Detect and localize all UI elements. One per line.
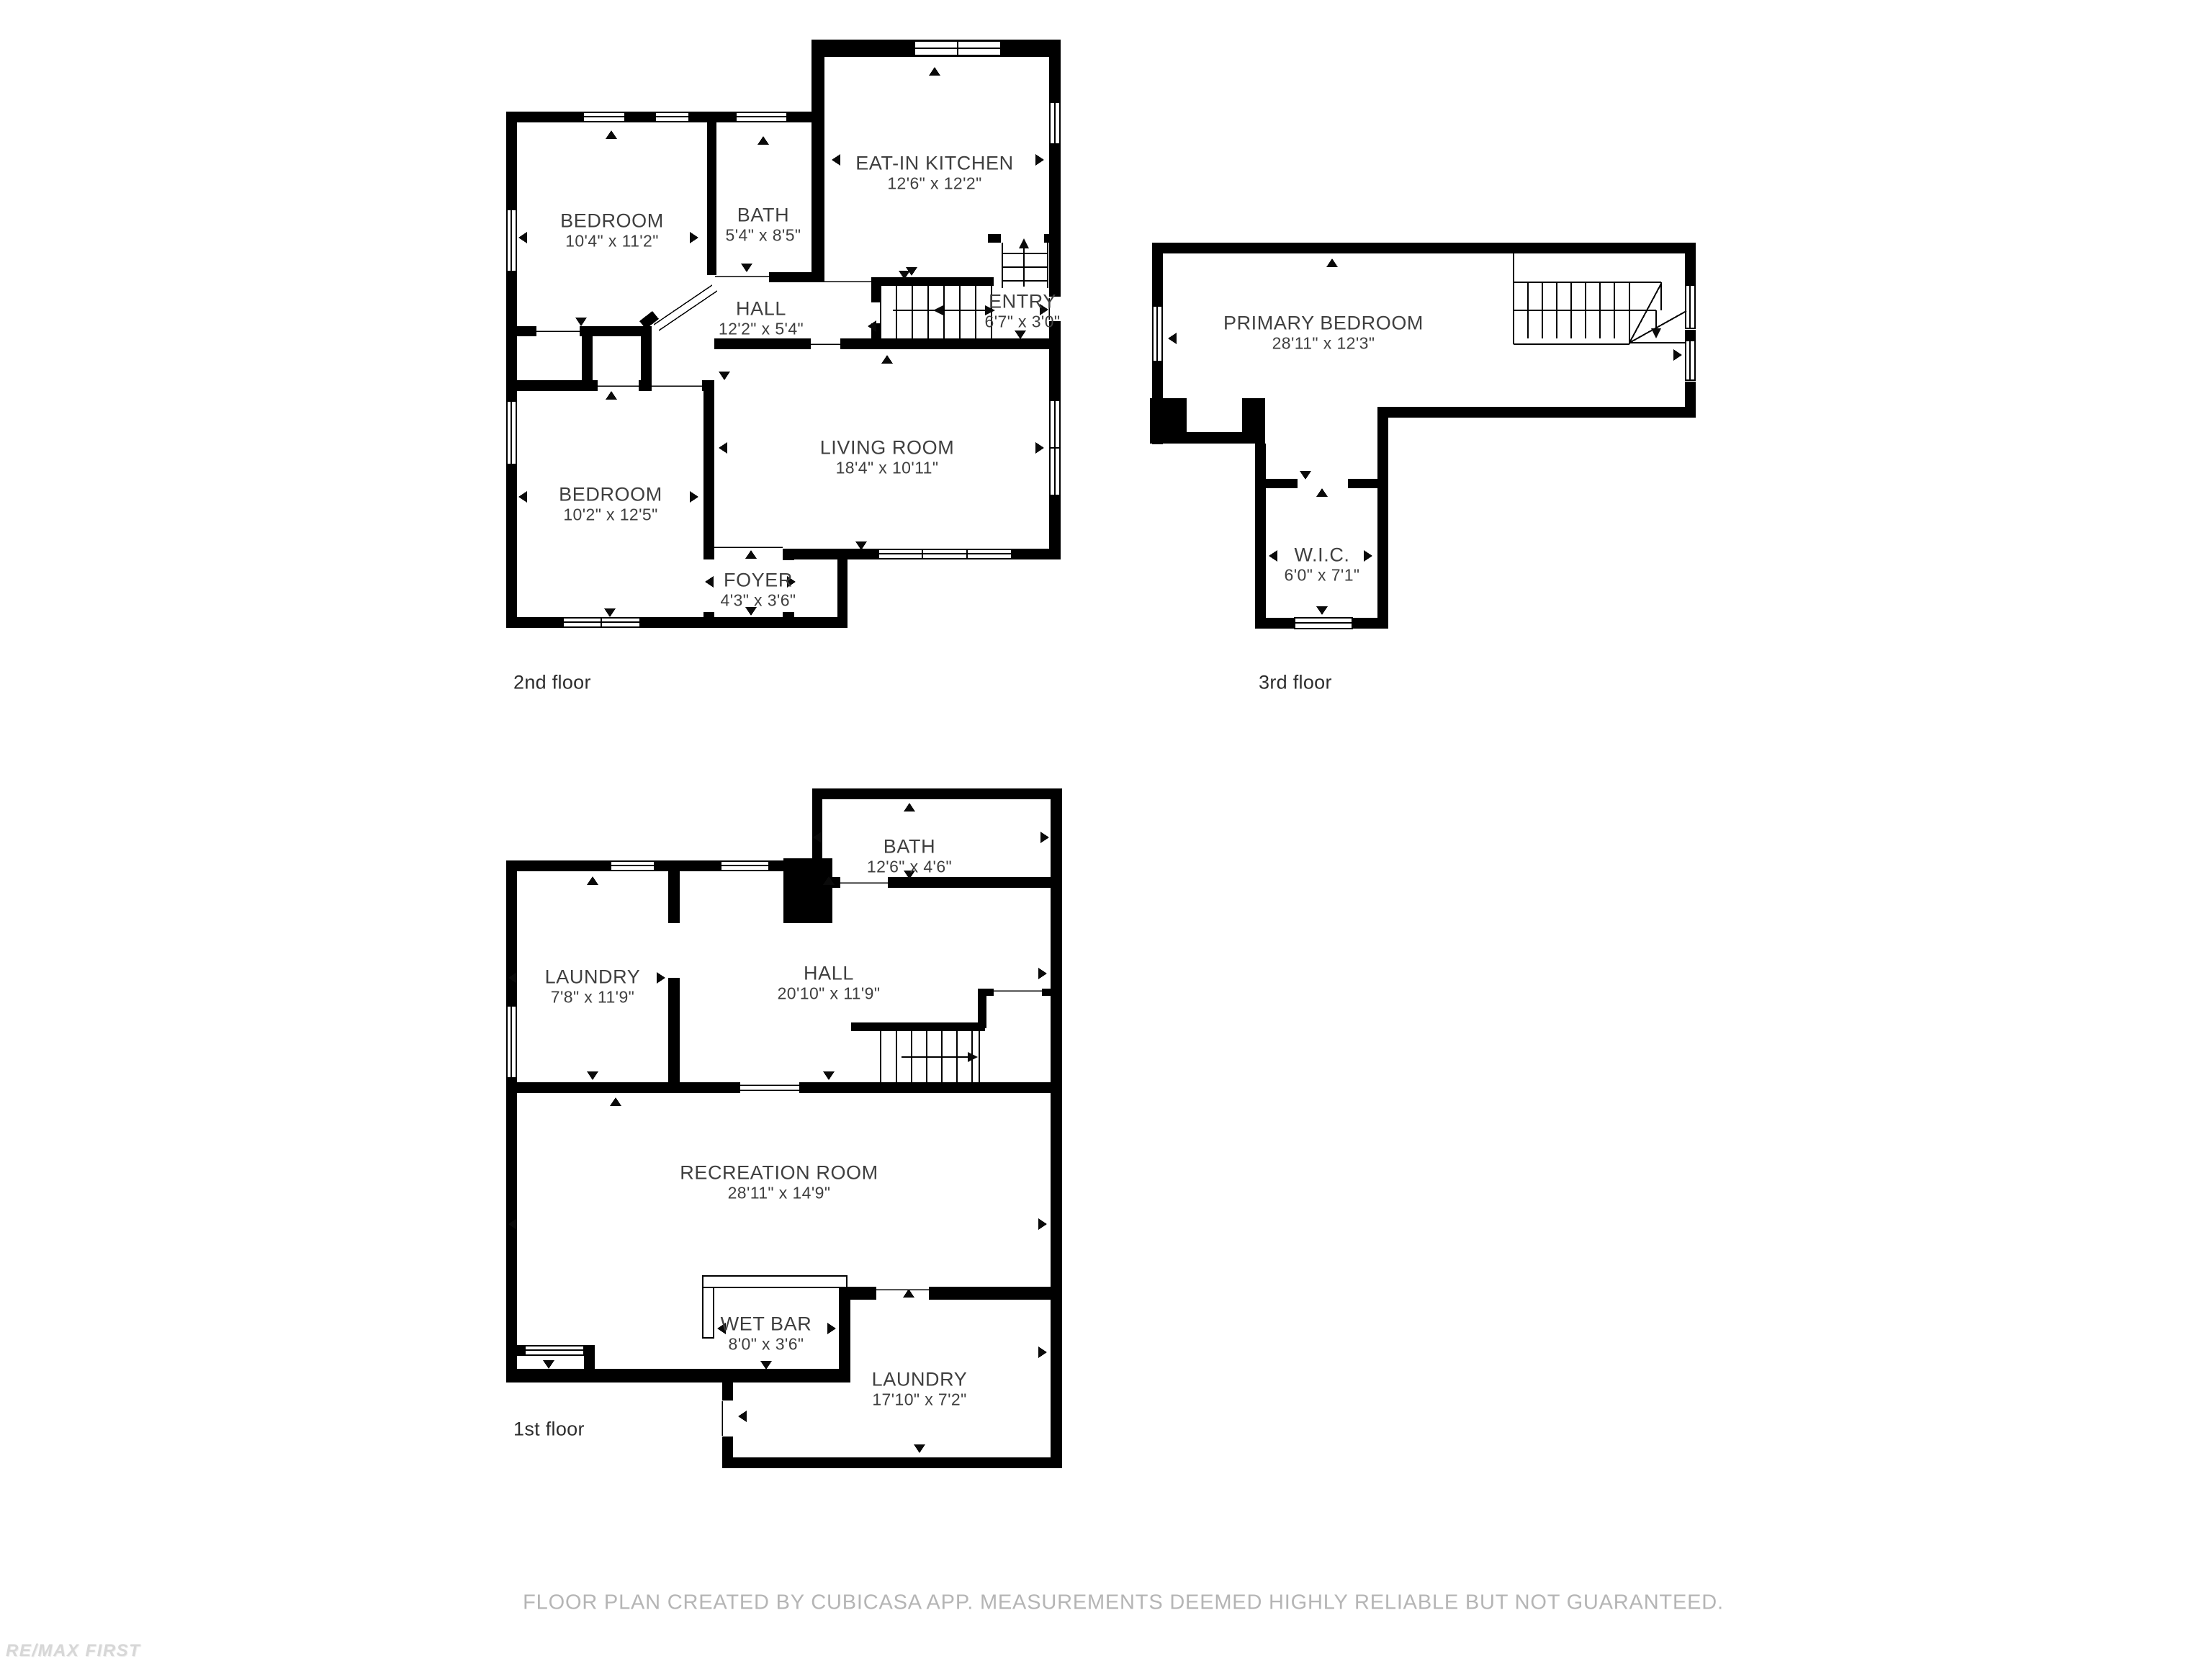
caption-2nd-floor: 2nd floor bbox=[513, 672, 591, 694]
room-name: LAUNDRY bbox=[872, 1369, 968, 1390]
room-label-wet-bar: WET BAR 8'0" x 3'6" bbox=[721, 1313, 812, 1354]
room-label-bedroom-rear: BEDROOM 10'2" x 12'5" bbox=[559, 484, 662, 525]
room-name: HALL bbox=[778, 963, 881, 984]
door-direction-arrow bbox=[606, 130, 617, 139]
room-label-laundry-1st: LAUNDRY 7'8" x 11'9" bbox=[545, 966, 641, 1007]
door-direction-arrow bbox=[1040, 832, 1049, 843]
door-direction-arrow bbox=[1038, 968, 1047, 979]
door-direction-arrow bbox=[1269, 550, 1277, 562]
door-direction-arrow bbox=[657, 972, 665, 984]
room-dims: 10'4" x 11'2" bbox=[560, 232, 664, 251]
door-direction-arrow bbox=[760, 1361, 772, 1370]
door-direction-arrow bbox=[604, 608, 616, 617]
door-direction-arrow bbox=[741, 264, 752, 272]
room-label-laundry-rear: LAUNDRY 17'10" x 7'2" bbox=[872, 1369, 968, 1410]
door-direction-arrow bbox=[575, 318, 587, 326]
caption-3rd-floor: 3rd floor bbox=[1259, 672, 1332, 694]
door-direction-arrow bbox=[904, 803, 915, 811]
door-direction-arrow bbox=[881, 355, 893, 364]
room-dims: 18'4" x 10'11" bbox=[820, 459, 955, 478]
room-dims: 12'6" x 12'2" bbox=[855, 174, 1013, 194]
door-direction-arrow bbox=[1316, 606, 1328, 615]
room-label-entry: ENTRY 6'7" x 3'0" bbox=[985, 291, 1061, 332]
room-dims: 12'2" x 5'4" bbox=[719, 320, 804, 339]
door-direction-arrow bbox=[719, 442, 727, 454]
door-direction-arrow bbox=[587, 1071, 598, 1080]
floorplan-3rd-floor bbox=[1145, 238, 1707, 691]
caption-1st-floor: 1st floor bbox=[513, 1419, 585, 1441]
door-direction-arrow bbox=[518, 232, 527, 243]
door-direction-arrow bbox=[1673, 349, 1682, 361]
room-dims: 8'0" x 3'6" bbox=[721, 1335, 812, 1354]
door-direction-arrow bbox=[606, 391, 617, 400]
room-label-recreation-room: RECREATION ROOM 28'11" x 14'9" bbox=[680, 1162, 878, 1203]
room-name: BATH bbox=[726, 204, 801, 226]
floorplan-1st-floor bbox=[500, 781, 1069, 1480]
door-direction-arrow bbox=[1015, 331, 1026, 339]
room-name: WET BAR bbox=[721, 1313, 812, 1335]
room-label-living-room: LIVING ROOM 18'4" x 10'11" bbox=[820, 437, 955, 478]
room-label-foyer: FOYER 4'3" x 3'6" bbox=[721, 570, 796, 611]
room-label-wic: W.I.C. 6'0" x 7'1" bbox=[1285, 544, 1360, 585]
room-label-hall-1st: HALL 20'10" x 11'9" bbox=[778, 963, 881, 1004]
room-name: BEDROOM bbox=[560, 210, 664, 232]
diagonal-wall bbox=[654, 285, 717, 331]
room-name: BEDROOM bbox=[559, 484, 662, 505]
floor-plan-sheet: BEDROOM 10'4" x 11'2" BATH 5'4" x 8'5" E… bbox=[0, 0, 2212, 1659]
room-dims: 28'11" x 14'9" bbox=[680, 1184, 878, 1203]
door-direction-arrow bbox=[1038, 1218, 1047, 1230]
door-direction-arrow bbox=[1038, 1346, 1047, 1358]
door-direction-arrow bbox=[690, 232, 698, 243]
door-direction-arrow bbox=[1168, 333, 1177, 344]
door-direction-arrow bbox=[832, 154, 840, 166]
door-direction-arrow bbox=[690, 491, 698, 503]
room-name: BATH bbox=[867, 836, 952, 858]
room-name: PRIMARY BEDROOM bbox=[1223, 313, 1424, 334]
door-direction-arrow bbox=[1035, 442, 1044, 454]
room-dims: 20'10" x 11'9" bbox=[778, 984, 881, 1004]
room-name: EAT-IN KITCHEN bbox=[855, 153, 1013, 174]
room-dims: 6'7" x 3'0" bbox=[985, 313, 1061, 332]
room-label-bedroom-front: BEDROOM 10'4" x 11'2" bbox=[560, 210, 664, 251]
room-name: FOYER bbox=[721, 570, 796, 591]
room-dims: 10'2" x 12'5" bbox=[559, 505, 662, 525]
door-direction-arrow bbox=[1300, 471, 1311, 480]
door-direction-arrow bbox=[610, 1097, 621, 1106]
room-name: RECREATION ROOM bbox=[680, 1162, 878, 1184]
room-name: HALL bbox=[719, 298, 804, 320]
room-name: LAUNDRY bbox=[545, 966, 641, 988]
room-dims: 5'4" x 8'5" bbox=[726, 226, 801, 246]
room-label-bath-1st: BATH 12'6" x 4'6" bbox=[867, 836, 952, 877]
room-label-hall-2nd: HALL 12'2" x 5'4" bbox=[719, 298, 804, 339]
door-direction-arrow bbox=[518, 491, 527, 503]
door-direction-arrow bbox=[738, 1411, 747, 1422]
door-direction-arrow bbox=[823, 1071, 835, 1080]
door-direction-arrow bbox=[543, 1360, 554, 1369]
staircase-3rd-floor bbox=[1514, 253, 1686, 344]
staircase-1st-floor bbox=[881, 1031, 979, 1085]
room-dims: 17'10" x 7'2" bbox=[872, 1390, 968, 1410]
room-name: W.I.C. bbox=[1285, 544, 1360, 566]
room-label-bath-2nd: BATH 5'4" x 8'5" bbox=[726, 204, 801, 246]
brand-watermark: RE/MAX FIRST bbox=[6, 1641, 140, 1659]
door-direction-arrow bbox=[587, 876, 598, 885]
door-direction-arrow bbox=[1035, 154, 1044, 166]
door-direction-arrow bbox=[1316, 488, 1328, 497]
door-direction-arrow bbox=[757, 136, 769, 145]
door-direction-arrow bbox=[705, 576, 714, 588]
door-direction-arrow bbox=[929, 67, 940, 76]
room-dims: 28'11" x 12'3" bbox=[1223, 334, 1424, 354]
room-dims: 12'6" x 4'6" bbox=[867, 858, 952, 877]
door-direction-arrow bbox=[1364, 550, 1372, 562]
room-dims: 7'8" x 11'9" bbox=[545, 988, 641, 1007]
door-direction-arrow bbox=[903, 1289, 914, 1298]
room-name: ENTRY bbox=[985, 291, 1061, 313]
walls-1st-floor bbox=[506, 788, 1062, 1468]
door-direction-arrow bbox=[745, 550, 757, 559]
room-label-primary-bedroom: PRIMARY BEDROOM 28'11" x 12'3" bbox=[1223, 313, 1424, 354]
door-direction-arrow bbox=[914, 1444, 925, 1453]
door-direction-arrow bbox=[719, 372, 730, 380]
door-direction-arrow bbox=[1326, 258, 1338, 267]
room-name: LIVING ROOM bbox=[820, 437, 955, 459]
room-label-eat-in-kitchen: EAT-IN KITCHEN 12'6" x 12'2" bbox=[855, 153, 1013, 194]
room-dims: 4'3" x 3'6" bbox=[721, 591, 796, 611]
room-dims: 6'0" x 7'1" bbox=[1285, 566, 1360, 585]
door-direction-arrow bbox=[827, 1323, 836, 1334]
disclaimer-text: FLOOR PLAN CREATED BY CUBICASA APP. MEAS… bbox=[523, 1591, 1724, 1615]
